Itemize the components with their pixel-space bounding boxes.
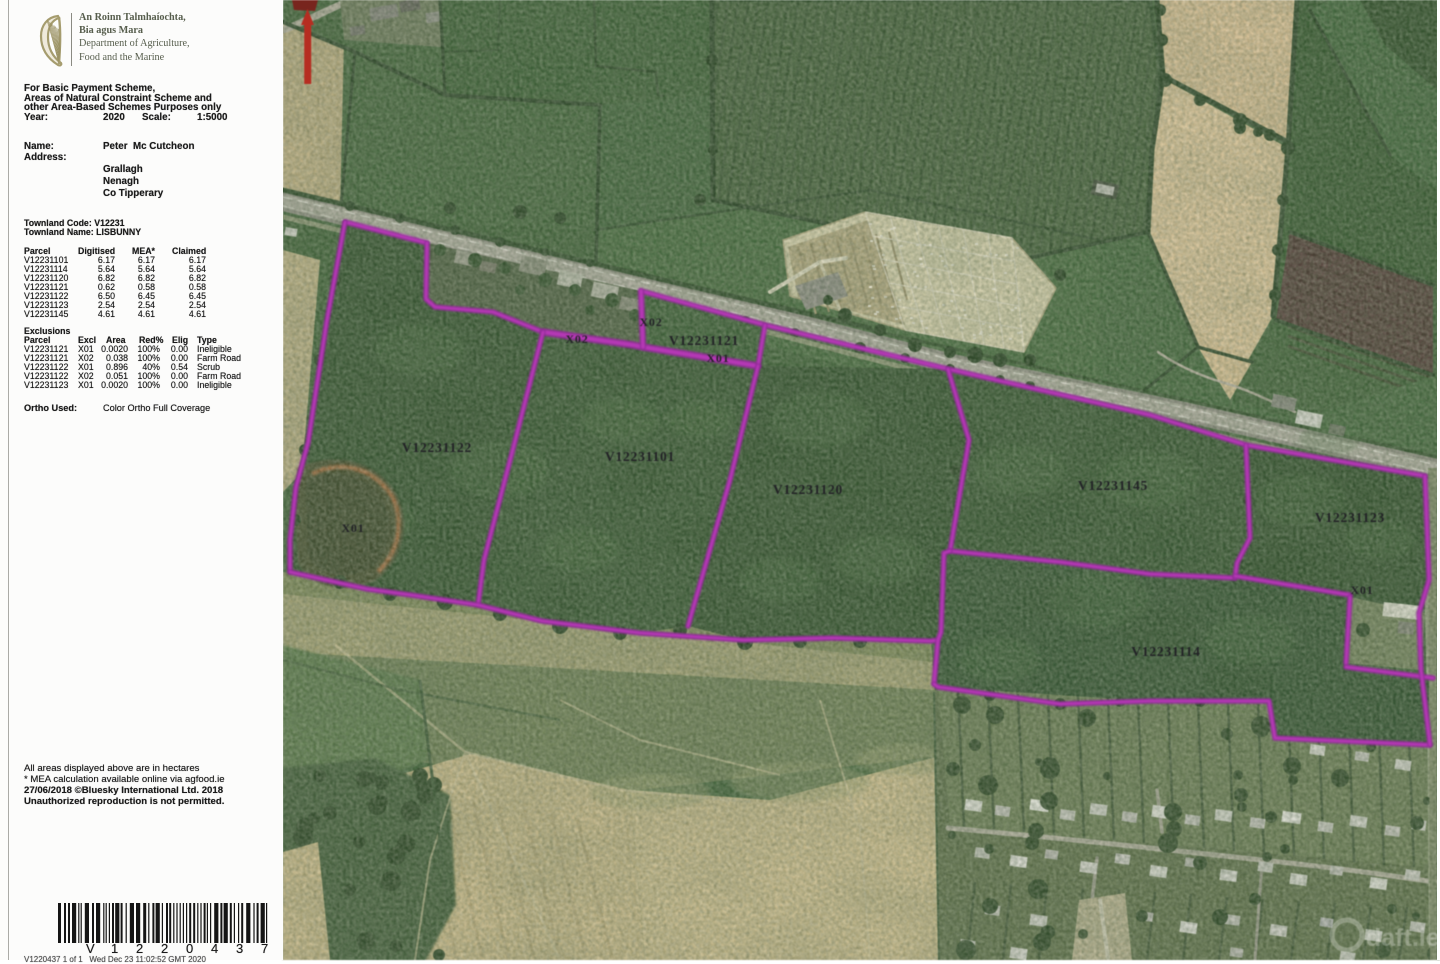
- svg-text:V12231122: V12231122: [402, 440, 472, 455]
- svg-text:X02: X02: [565, 332, 588, 346]
- svg-text:V12231145: V12231145: [1078, 478, 1148, 493]
- svg-text:X01: X01: [706, 351, 729, 365]
- svg-text:V12231120: V12231120: [773, 482, 843, 497]
- svg-text:X02: X02: [639, 315, 662, 329]
- svg-text:V12231123: V12231123: [1315, 510, 1385, 525]
- svg-text:V12231101: V12231101: [605, 449, 675, 464]
- svg-text:daft.ie: daft.ie: [1366, 924, 1440, 952]
- svg-text:V12231114: V12231114: [1131, 644, 1200, 659]
- svg-text:X01: X01: [341, 521, 364, 535]
- svg-text:V12231121: V12231121: [669, 333, 739, 348]
- svg-text:X01: X01: [1350, 583, 1373, 597]
